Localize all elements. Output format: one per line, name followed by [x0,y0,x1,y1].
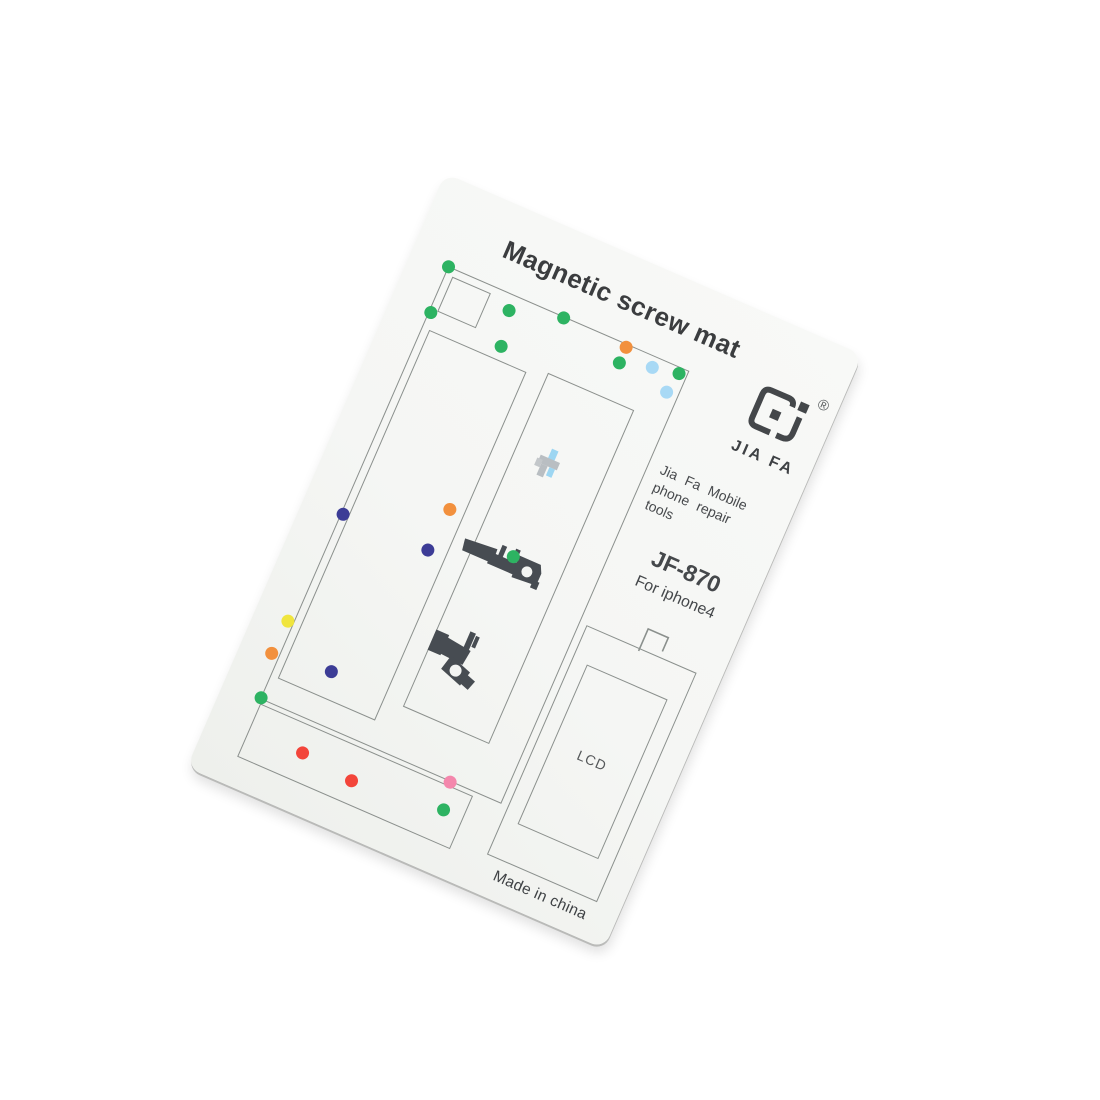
navy-screw-dot [334,505,351,522]
navy-screw-dot [323,662,340,679]
sky-screw-dot [643,358,660,375]
green-screw-dot [252,689,269,706]
green-screw-dot [555,309,572,326]
navy-screw-dot [419,541,436,558]
dots-layer [187,173,863,949]
pink-screw-dot [441,773,458,790]
red-screw-dot [294,744,311,761]
green-screw-dot [422,303,439,320]
green-screw-dot [504,547,521,564]
green-screw-dot [435,801,452,818]
orange-screw-dot [617,338,634,355]
orange-screw-dot [441,500,458,517]
green-screw-dot [492,337,509,354]
green-screw-dot [440,258,457,275]
green-screw-dot [670,364,687,381]
orange-screw-dot [263,644,280,661]
red-screw-dot [343,772,360,789]
green-screw-dot [611,354,628,371]
yellow-screw-dot [279,612,296,629]
sky-screw-dot [658,383,675,400]
product-photo-scene: Magnetic screw mat LCD ® [0,0,1100,1100]
green-screw-dot [500,301,517,318]
magnetic-screw-mat-card: Magnetic screw mat LCD ® [187,173,863,949]
